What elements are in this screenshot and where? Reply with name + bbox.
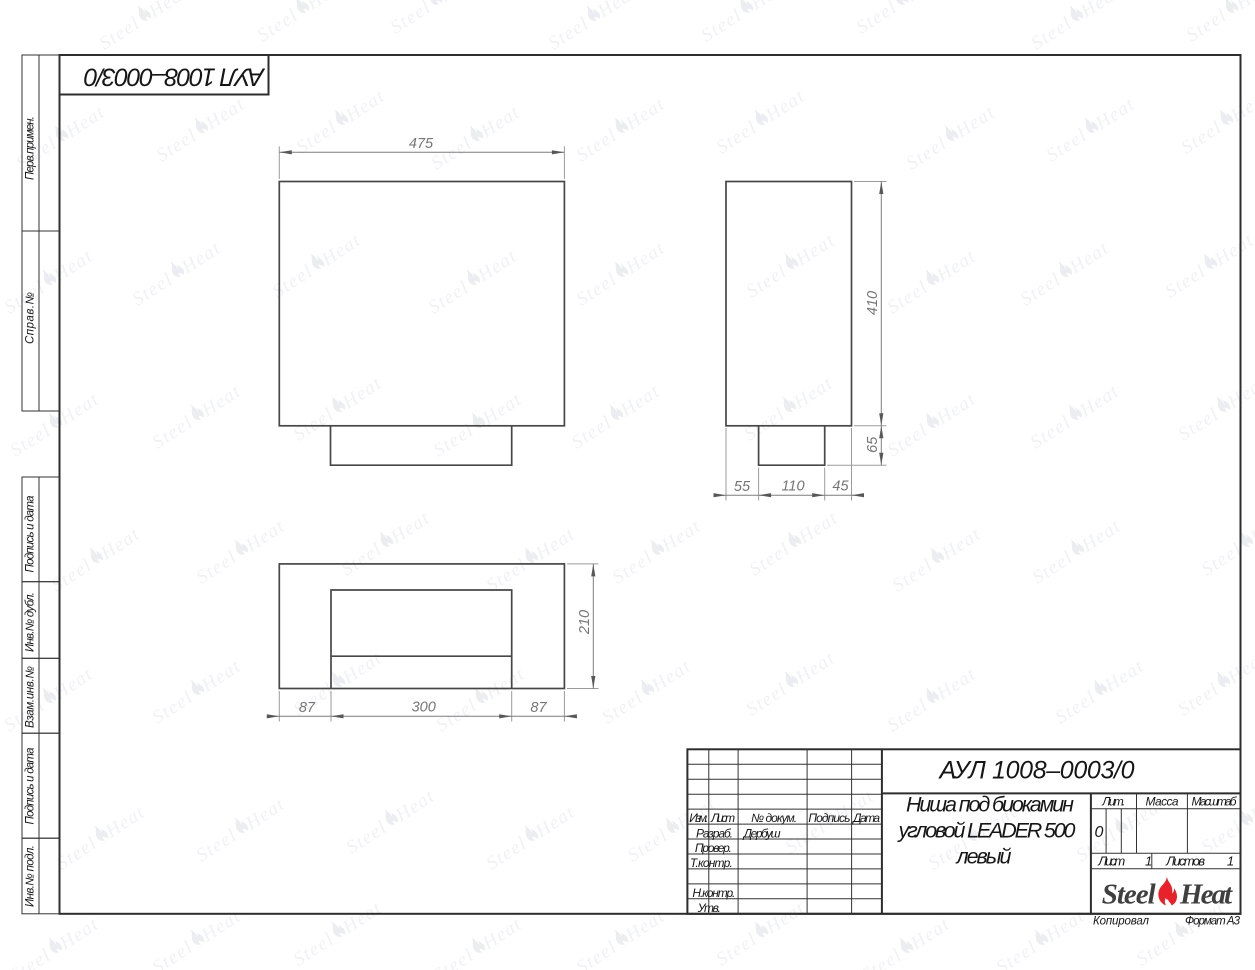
svg-text:0: 0 <box>1094 824 1103 841</box>
svg-text:210: 210 <box>577 610 593 635</box>
svg-text:Подпись и дата: Подпись и дата <box>25 496 37 573</box>
svg-text:Лит.: Лит. <box>1101 795 1125 809</box>
svg-text:Лист: Лист <box>710 811 735 825</box>
svg-text:110: 110 <box>781 479 804 495</box>
svg-text:Перв.примен.: Перв.примен. <box>25 116 37 180</box>
svg-text:№ докум.: № докум. <box>751 811 797 825</box>
svg-text:1: 1 <box>1145 853 1152 868</box>
svg-text:Ниша под биокамин: Ниша под биокамин <box>906 793 1074 817</box>
svg-text:АУЛ 1008–0003/0: АУЛ 1008–0003/0 <box>938 757 1135 785</box>
svg-text:87: 87 <box>299 700 316 716</box>
svg-text:Лист: Лист <box>1097 853 1125 868</box>
svg-text:55: 55 <box>734 479 751 495</box>
svg-text:Подпись и дата: Подпись и дата <box>25 748 37 825</box>
svg-text:Копировал: Копировал <box>1093 916 1150 928</box>
svg-text:Дата: Дата <box>851 811 880 825</box>
svg-text:Масса: Масса <box>1146 795 1179 809</box>
svg-text:Подпись: Подпись <box>808 811 850 825</box>
svg-text:АУЛ 1008–0003/0: АУЛ 1008–0003/0 <box>84 62 266 90</box>
svg-text:300: 300 <box>412 700 436 716</box>
svg-text:Инв.№ дубл.: Инв.№ дубл. <box>25 592 37 652</box>
svg-text:Дербуш: Дербуш <box>742 826 781 840</box>
svg-text:Т.контр.: Т.контр. <box>690 856 733 870</box>
svg-text:410: 410 <box>865 291 881 315</box>
svg-text:Масштаб: Масштаб <box>1192 795 1238 809</box>
svg-text:Steel: Steel <box>1102 879 1157 911</box>
svg-text:Изм.: Изм. <box>689 811 708 825</box>
svg-text:Н.контр.: Н.контр. <box>692 886 735 900</box>
svg-text:Провер.: Провер. <box>695 841 732 855</box>
svg-text:Листов: Листов <box>1165 853 1205 868</box>
svg-text:45: 45 <box>832 479 849 495</box>
svg-text:левый: левый <box>955 845 1012 869</box>
svg-text:Взам.инв.№: Взам.инв.№ <box>25 665 37 728</box>
svg-text:Разраб.: Разраб. <box>696 826 733 840</box>
svg-text:Справ.№: Справ.№ <box>25 291 37 344</box>
svg-text:угловой LEADER 500: угловой LEADER 500 <box>897 819 1076 843</box>
svg-text:87: 87 <box>530 700 547 716</box>
svg-text:Утв.: Утв. <box>697 901 721 915</box>
svg-text:1: 1 <box>1227 853 1234 868</box>
svg-text:Инв.№ подл.: Инв.№ подл. <box>25 845 37 907</box>
svg-text:65: 65 <box>865 436 881 453</box>
svg-text:Формат А3: Формат А3 <box>1185 916 1241 928</box>
svg-text:Heat: Heat <box>1179 879 1233 911</box>
svg-text:475: 475 <box>409 136 434 152</box>
